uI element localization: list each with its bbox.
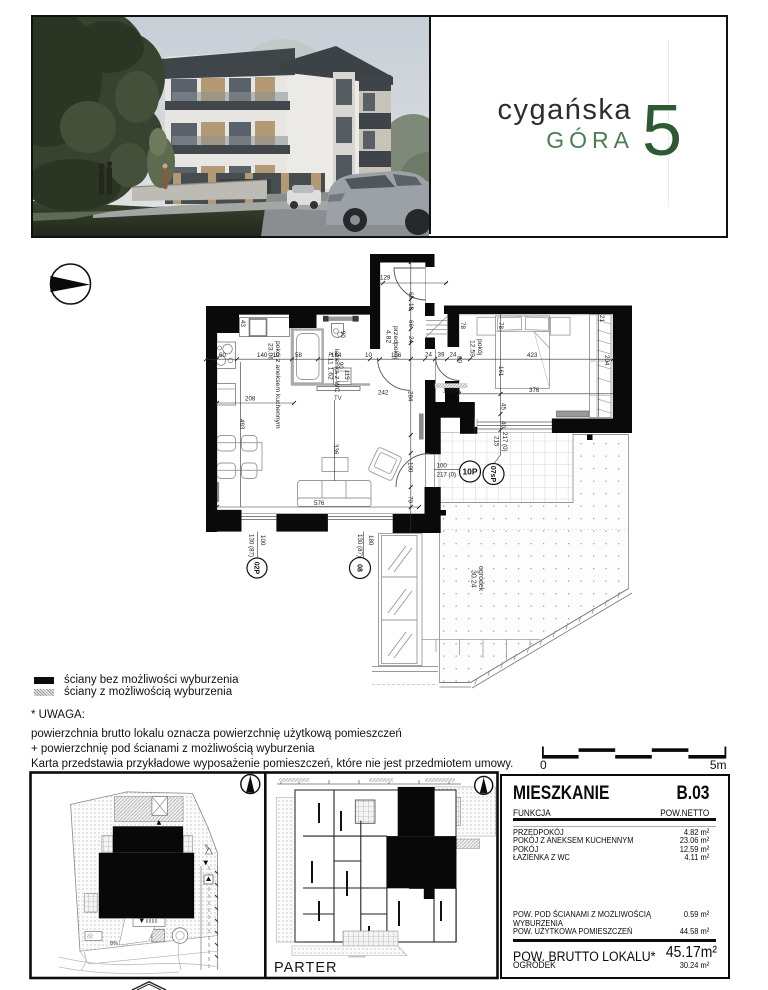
svg-text:100: 100 <box>259 535 266 546</box>
svg-text:217 (0): 217 (0) <box>437 472 457 479</box>
svg-text:376: 376 <box>529 387 540 394</box>
svg-text:80: 80 <box>456 356 463 363</box>
svg-text:przedpokój: przedpokój <box>392 326 399 360</box>
svg-text:pokój: pokój <box>476 339 483 356</box>
svg-text:129: 129 <box>380 275 391 282</box>
svg-text:161: 161 <box>497 366 504 377</box>
svg-text:TV: TV <box>334 396 342 402</box>
svg-text:115: 115 <box>343 370 349 380</box>
svg-text:21: 21 <box>598 315 605 322</box>
svg-text:215: 215 <box>493 436 500 447</box>
svg-text:12.59: 12.59 <box>469 340 476 357</box>
svg-text:100: 100 <box>437 463 448 470</box>
svg-text:70: 70 <box>407 496 414 503</box>
svg-text:65: 65 <box>407 292 414 299</box>
svg-text:217 (0): 217 (0) <box>501 432 508 452</box>
svg-text:8%: 8% <box>110 941 118 947</box>
svg-text:4.11 1.62: 4.11 1.62 <box>327 352 334 380</box>
svg-text:423: 423 <box>527 352 538 359</box>
svg-text:07sP: 07sP <box>489 466 496 483</box>
svg-text:pokój z aneksem kuchennym: pokój z aneksem kuchennym <box>274 341 281 429</box>
svg-text:56: 56 <box>454 388 461 395</box>
svg-text:40: 40 <box>500 421 507 428</box>
svg-text:4.82: 4.82 <box>385 330 392 343</box>
svg-text:ogródek: ogródek <box>477 566 484 592</box>
svg-text:PARTER: PARTER <box>274 960 337 976</box>
svg-text:08: 08 <box>356 564 363 572</box>
svg-text:43: 43 <box>239 320 246 327</box>
svg-text:90: 90 <box>339 331 345 338</box>
svg-text:30.24: 30.24 <box>470 570 477 588</box>
svg-text:100: 100 <box>407 462 414 473</box>
svg-text:130 (87): 130 (87) <box>356 534 363 557</box>
svg-text:130 (87): 130 (87) <box>248 534 255 557</box>
svg-text:576: 576 <box>314 500 325 507</box>
svg-text:23.06: 23.06 <box>267 343 274 360</box>
svg-text:90: 90 <box>337 362 343 369</box>
svg-text:242: 242 <box>378 390 389 397</box>
svg-text:58: 58 <box>295 352 302 359</box>
svg-text:78: 78 <box>459 322 466 329</box>
svg-text:24: 24 <box>425 352 432 359</box>
svg-text:204: 204 <box>603 355 610 366</box>
svg-text:66: 66 <box>407 320 414 327</box>
svg-text:02P: 02P <box>253 562 260 575</box>
svg-text:284: 284 <box>407 391 414 402</box>
svg-text:10: 10 <box>365 352 372 359</box>
svg-text:45: 45 <box>500 403 507 410</box>
svg-text:24: 24 <box>407 336 414 343</box>
svg-text:10P: 10P <box>462 467 477 477</box>
svg-text:140: 140 <box>257 352 268 359</box>
svg-text:5m: 5m <box>710 758 727 772</box>
svg-text:180: 180 <box>367 535 374 546</box>
svg-text:60: 60 <box>219 352 226 359</box>
svg-text:336: 336 <box>332 444 339 455</box>
svg-text:78: 78 <box>497 322 504 329</box>
svg-text:493: 493 <box>238 419 245 430</box>
svg-text:208: 208 <box>245 396 256 403</box>
svg-text:0: 0 <box>540 758 547 772</box>
svg-text:110: 110 <box>443 388 453 395</box>
svg-text:39: 39 <box>438 352 445 359</box>
svg-text:18: 18 <box>407 303 414 310</box>
